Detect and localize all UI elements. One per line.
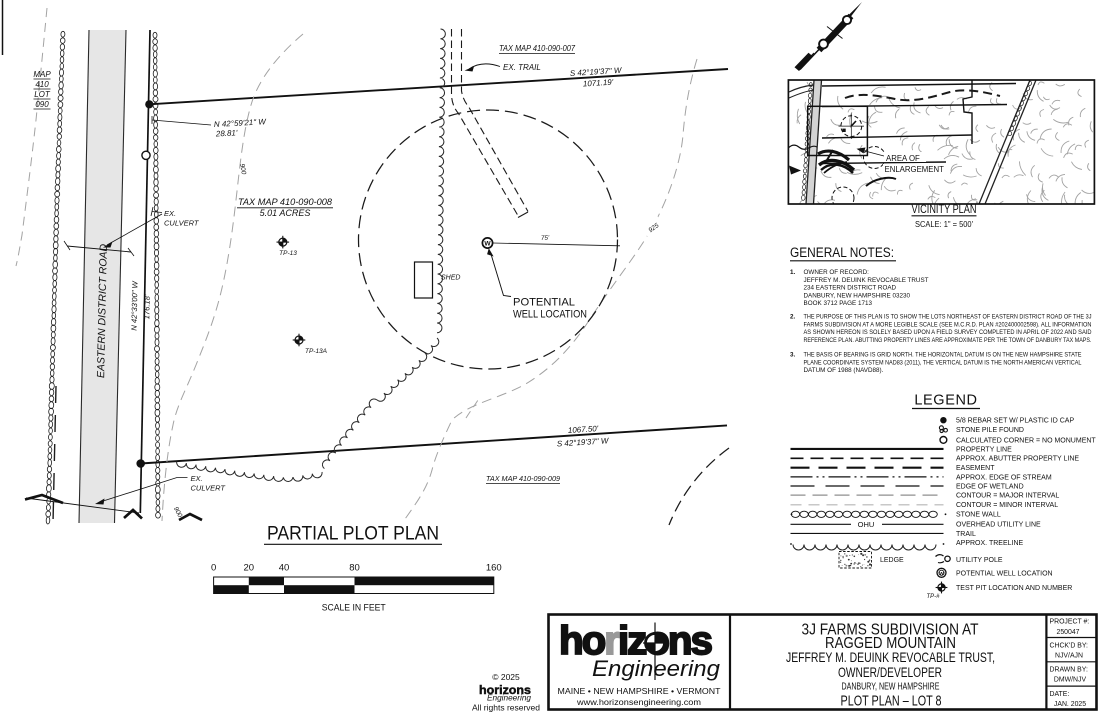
svg-text:CONTOUR = MAJOR INTERVAL: CONTOUR = MAJOR INTERVAL: [956, 493, 1059, 500]
svg-text:3.: 3.: [790, 352, 796, 359]
svg-text:CALCULATED CORNER = NO MONUMEN: CALCULATED CORNER = NO MONUMENT: [956, 437, 1096, 444]
svg-text:SCALE: 1" = 500': SCALE: 1" = 500': [915, 220, 973, 229]
svg-text:PROJECT #:: PROJECT #:: [1050, 619, 1090, 626]
svg-text:MAP: MAP: [33, 70, 51, 79]
svg-text:PROPERTY LINE: PROPERTY LINE: [956, 446, 1012, 453]
svg-text:BOOK 3712 PAGE 1713: BOOK 3712 PAGE 1713: [804, 300, 873, 307]
svg-text:SHED: SHED: [441, 275, 460, 282]
svg-text:N 42°59'21" W: N 42°59'21" W: [214, 117, 268, 129]
svg-text:2.: 2.: [790, 314, 796, 321]
svg-text:CHCK'D BY:: CHCK'D BY:: [1050, 642, 1089, 649]
svg-text:NJV/AJN: NJV/AJN: [1055, 652, 1083, 659]
svg-text:900: 900: [238, 163, 247, 175]
svg-text:0: 0: [211, 563, 216, 574]
svg-text:PLANE COORDINATE SYSTEM NAD83: PLANE COORDINATE SYSTEM NAD83 (2011), TH…: [804, 359, 1082, 366]
svg-text:5.01 ACRES: 5.01 ACRES: [260, 208, 311, 218]
svg-text:JEFFREY M. DEUINK REVOCABLE TR: JEFFREY M. DEUINK REVOCABLE TRUST: [804, 277, 929, 284]
svg-text:SCALE IN FEET: SCALE IN FEET: [322, 603, 386, 614]
svg-text:TP-13A: TP-13A: [305, 348, 327, 355]
svg-text:APPROX. EDGE OF STREAM: APPROX. EDGE OF STREAM: [956, 474, 1052, 481]
svg-text:1.: 1.: [790, 269, 796, 276]
svg-text:N 42°33'00" W: N 42°33'00" W: [129, 280, 139, 330]
svg-text:All rights reserved: All rights reserved: [472, 703, 540, 713]
svg-text:GENERAL NOTES:: GENERAL NOTES:: [790, 245, 894, 260]
svg-text:EX. TRAIL: EX. TRAIL: [503, 63, 541, 72]
svg-text:AS SHOWN HEREON IS SOLELY BASE: AS SHOWN HEREON IS SOLELY BASED UPON A F…: [804, 329, 1092, 336]
svg-text:W: W: [939, 571, 944, 576]
svg-text:20: 20: [244, 563, 255, 574]
svg-text:AREA OF: AREA OF: [886, 154, 920, 163]
svg-text:DMW/NJV: DMW/NJV: [1054, 677, 1087, 684]
svg-text:DATE:: DATE:: [1050, 691, 1070, 698]
svg-text:TAX MAP 410-090-009: TAX MAP 410-090-009: [486, 474, 561, 483]
svg-text:© 2025: © 2025: [492, 672, 520, 682]
svg-text:POTENTIAL WELL LOCATION: POTENTIAL WELL LOCATION: [956, 570, 1053, 577]
svg-text:THE BASIS OF BEARING IS GRID N: THE BASIS OF BEARING IS GRID NORTH. THE …: [804, 352, 1082, 359]
svg-text:75': 75': [541, 235, 550, 242]
svg-text:40: 40: [279, 563, 290, 574]
svg-text:OHU: OHU: [858, 520, 875, 529]
svg-text:OWNER OF RECORD:: OWNER OF RECORD:: [804, 269, 870, 276]
svg-text:PLOT PLAN – LOT 8: PLOT PLAN – LOT 8: [841, 692, 942, 709]
svg-text:160: 160: [486, 563, 502, 574]
svg-text:VICINITY PLAN: VICINITY PLAN: [912, 204, 977, 216]
svg-text:EDGE OF WETLAND: EDGE OF WETLAND: [956, 483, 1024, 490]
svg-text:TP-#: TP-#: [926, 594, 940, 600]
svg-text:REFERENCE PLAN. ABUTTING PROPE: REFERENCE PLAN. ABUTTING PROPERTY LINES …: [804, 337, 1092, 344]
svg-text:WELL LOCATION: WELL LOCATION: [513, 309, 587, 321]
svg-text:5/8 REBAR SET W/ PLASTIC ID CA: 5/8 REBAR SET W/ PLASTIC ID CAP: [956, 418, 1074, 425]
svg-text:1071.19': 1071.19': [583, 78, 614, 89]
svg-text:JEFFREY M. DEUINK REVOCABLE TR: JEFFREY M. DEUINK REVOCABLE TRUST,: [786, 649, 995, 665]
svg-text:STONE WALL: STONE WALL: [956, 512, 1001, 519]
svg-text:EX.: EX.: [191, 474, 203, 483]
svg-text:LEGEND: LEGEND: [914, 393, 977, 409]
svg-text:ENLARGEMENT: ENLARGEMENT: [885, 165, 945, 174]
svg-text:APPROX. ABUTTER PROPERTY LINE: APPROX. ABUTTER PROPERTY LINE: [956, 456, 1079, 463]
svg-text:UTILITY POLE: UTILITY POLE: [956, 557, 1003, 564]
svg-text:STONE PILE FOUND: STONE PILE FOUND: [956, 427, 1024, 434]
svg-text:EX.: EX.: [164, 209, 176, 218]
svg-text:28.81': 28.81': [215, 128, 238, 138]
svg-text:CULVERT: CULVERT: [191, 484, 227, 493]
svg-text:MAINE • NEW HAMPSHIRE • VERMON: MAINE • NEW HAMPSHIRE • VERMONT: [558, 686, 721, 696]
svg-text:CONTOUR = MINOR INTERVAL: CONTOUR = MINOR INTERVAL: [956, 502, 1058, 509]
svg-text:TEST PIT LOCATION AND NUMBER: TEST PIT LOCATION AND NUMBER: [956, 585, 1072, 592]
svg-text:CULVERT: CULVERT: [164, 219, 200, 228]
svg-text:250047: 250047: [1057, 629, 1080, 636]
svg-text:DATUM OF 1988 (NAVD88).: DATUM OF 1988 (NAVD88).: [804, 367, 884, 374]
svg-text:TRAIL: TRAIL: [956, 531, 976, 538]
svg-text:OVERHEAD UTILITY LINE: OVERHEAD UTILITY LINE: [956, 522, 1041, 529]
svg-text:FARMS SUBDIVISION AT A MORE LE: FARMS SUBDIVISION AT A MORE LEGIBLE SCAL…: [804, 321, 1092, 328]
svg-text:DRAWN BY:: DRAWN BY:: [1050, 667, 1088, 674]
svg-text:DANBURY, NEW HAMPSHIRE 03230: DANBURY, NEW HAMPSHIRE 03230: [804, 292, 911, 299]
svg-text:090: 090: [35, 100, 49, 109]
svg-text:APPROX. TREELINE: APPROX. TREELINE: [956, 540, 1024, 547]
svg-text:PARTIAL PLOT PLAN: PARTIAL PLOT PLAN: [267, 523, 439, 545]
svg-text:TP-13: TP-13: [279, 250, 297, 257]
svg-text:80: 80: [349, 563, 360, 574]
svg-text:www.horizonsengineering.com: www.horizonsengineering.com: [576, 697, 701, 707]
svg-text:JAN. 2025: JAN. 2025: [1054, 701, 1086, 708]
svg-text:176.18': 176.18': [142, 294, 152, 319]
svg-text:POTENTIAL: POTENTIAL: [513, 297, 575, 309]
svg-text:DANBURY, NEW HAMPSHIRE: DANBURY, NEW HAMPSHIRE: [842, 682, 940, 693]
svg-text:LEDGE: LEDGE: [880, 557, 904, 564]
svg-text:TAX MAP 410-090-007: TAX MAP 410-090-007: [499, 44, 576, 53]
svg-text:S 42°19'37" W: S 42°19'37" W: [557, 436, 611, 448]
svg-text:Engineering: Engineering: [487, 694, 532, 703]
svg-text:EASEMENT: EASEMENT: [956, 465, 995, 472]
svg-text:TAX MAP 410-090-008: TAX MAP 410-090-008: [238, 197, 332, 207]
svg-text:234 EASTERN DISTRICT ROAD: 234 EASTERN DISTRICT ROAD: [804, 285, 897, 292]
svg-text:THE PURPOSE OF THIS PLAN IS TO: THE PURPOSE OF THIS PLAN IS TO SHOW THE …: [804, 314, 1092, 321]
svg-text:410: 410: [35, 80, 49, 89]
svg-text:Engineering: Engineering: [592, 656, 721, 681]
svg-text:W: W: [484, 241, 491, 248]
svg-text:LOT: LOT: [34, 90, 51, 99]
svg-text:OWNER/DEVELOPER: OWNER/DEVELOPER: [838, 664, 942, 680]
